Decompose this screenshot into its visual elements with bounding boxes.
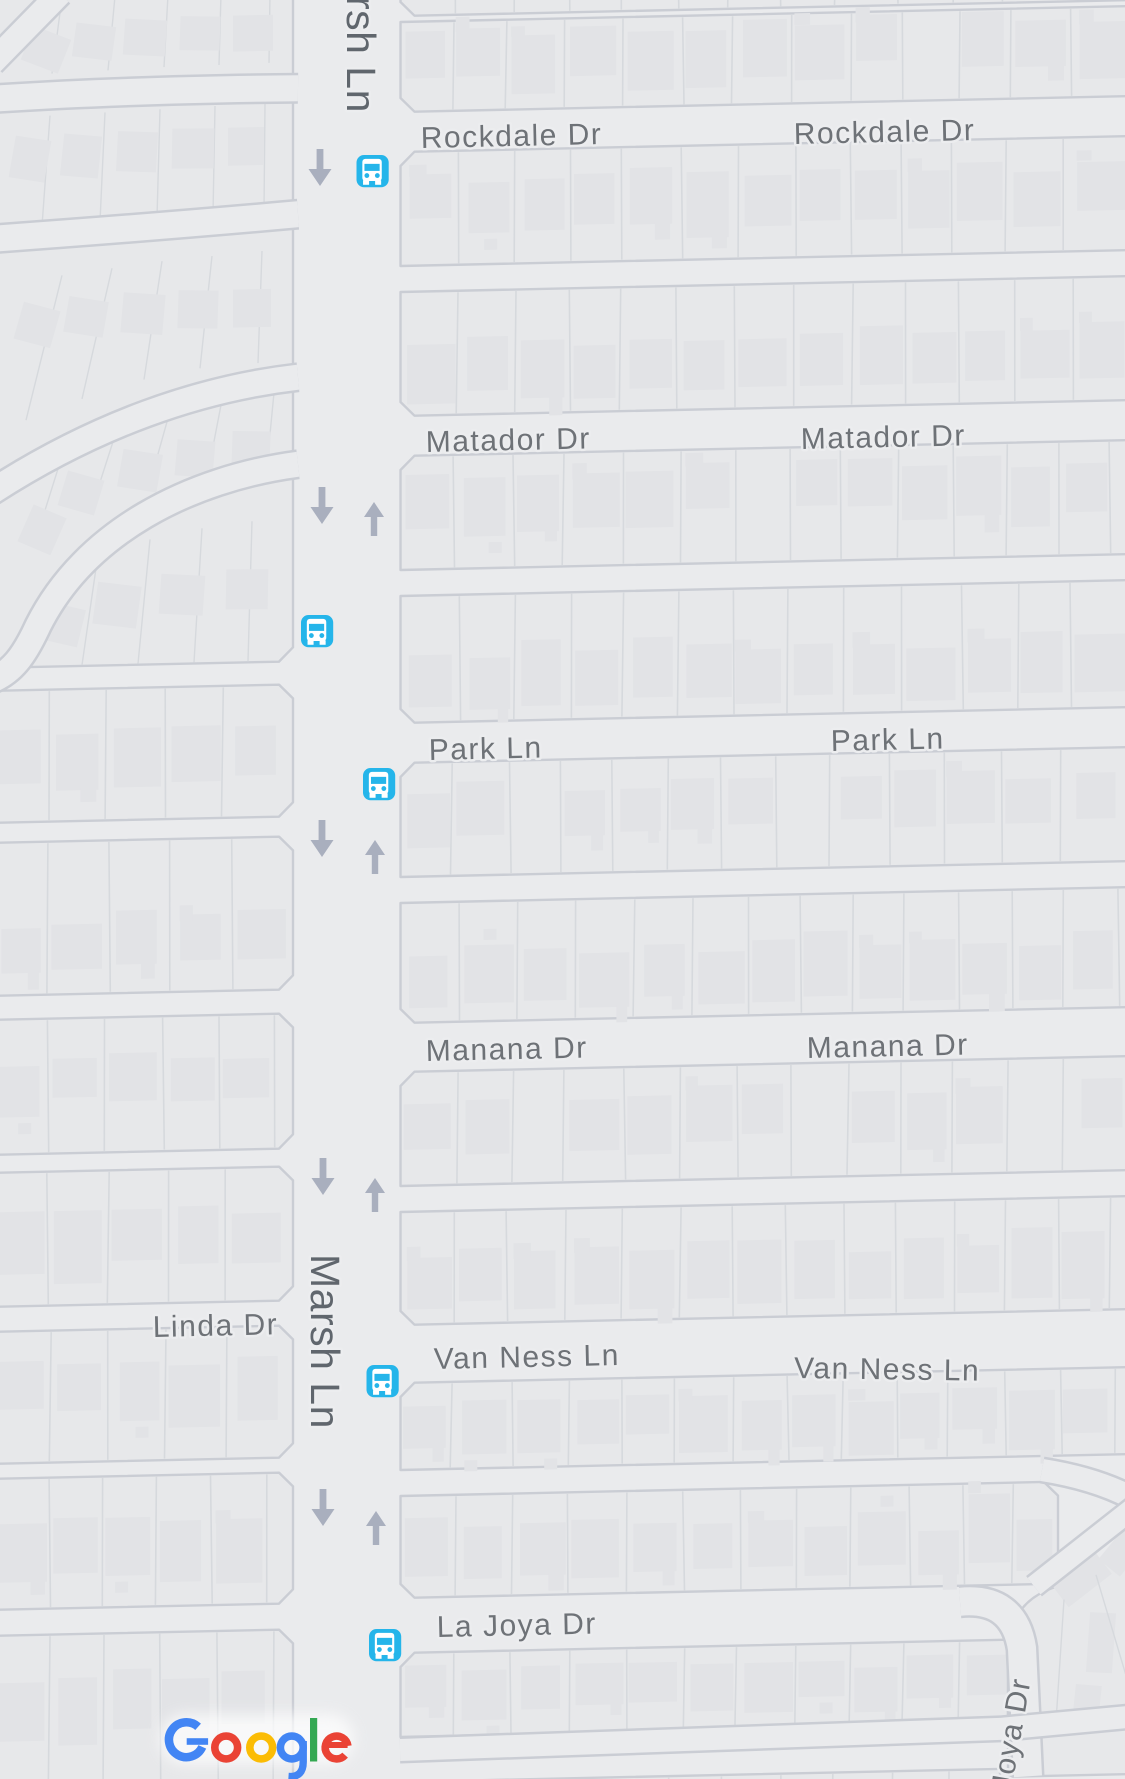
svg-text:Marsh Ln: Marsh Ln — [302, 1254, 348, 1429]
svg-text:Rockdale Dr: Rockdale Dr — [793, 114, 975, 151]
svg-text:Van Ness Ln: Van Ness Ln — [433, 1339, 620, 1376]
svg-text:La Joya Dr: La Joya Dr — [436, 1608, 597, 1644]
svg-text:Manana Dr: Manana Dr — [425, 1031, 588, 1068]
svg-text:Park Ln: Park Ln — [428, 732, 543, 767]
svg-text:Matador Dr: Matador Dr — [800, 419, 966, 456]
svg-text:Rockdale Dr: Rockdale Dr — [420, 118, 602, 155]
svg-text:Linda Dr: Linda Dr — [152, 1308, 278, 1344]
svg-text:Park Ln: Park Ln — [830, 723, 945, 758]
svg-text:Manana Dr: Manana Dr — [806, 1028, 969, 1065]
svg-text:Van Ness Ln: Van Ness Ln — [794, 1352, 980, 1388]
svg-text:Matador Dr: Matador Dr — [425, 422, 591, 459]
svg-text:Marsh Ln: Marsh Ln — [338, 0, 384, 113]
